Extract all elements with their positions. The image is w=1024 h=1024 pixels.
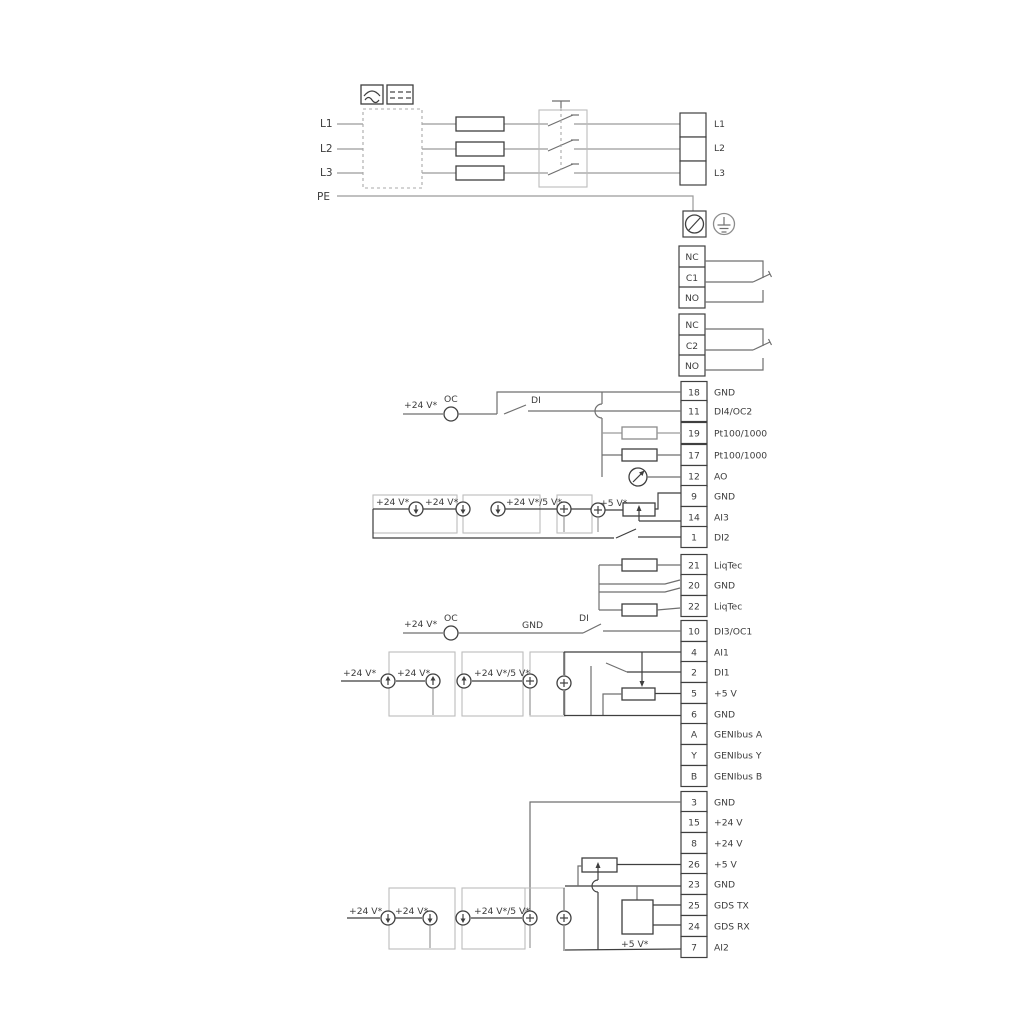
current-source-icon	[423, 911, 437, 925]
terminal-label: +24 V	[714, 838, 743, 849]
current-source-icon	[457, 674, 471, 688]
voltage-source-icon	[557, 676, 571, 690]
terminal-number: 15	[688, 817, 700, 828]
voltage-source-icon	[557, 911, 571, 925]
protective-earth-icon	[714, 214, 735, 235]
fuse-icon-l1	[456, 117, 504, 131]
terminal-label: GND	[714, 709, 735, 720]
resistor-icon	[622, 604, 657, 616]
terminal-number: 7	[691, 942, 697, 953]
relay2-no: NO	[685, 361, 699, 372]
oc-collector-icon	[444, 626, 458, 640]
resistor-icon	[622, 559, 657, 571]
v24-label: +24 V*	[349, 906, 383, 917]
terminal-number: 24	[688, 921, 700, 932]
terminal-label: Pt100/1000	[714, 428, 767, 439]
terminal-number: 9	[691, 491, 697, 502]
gnd-label: GND	[522, 620, 543, 631]
terminal-number: 21	[688, 560, 700, 571]
terminal-label: LiqTec	[714, 601, 742, 612]
gds-module-box	[622, 900, 653, 934]
wiring-diagram-page: L1 L2 L3 PE	[0, 0, 1024, 1024]
v24-label: +24 V*	[404, 400, 438, 411]
dc-icon	[387, 85, 413, 104]
ac-wave-icon	[361, 85, 383, 104]
terminal-label: DI3/OC1	[714, 626, 752, 637]
terminal-label: LiqTec	[714, 560, 742, 571]
v5-label: +5 V*	[621, 939, 649, 950]
out-label-l1: L1	[714, 119, 725, 130]
terminal-label: +5 V	[714, 859, 737, 870]
terminal-number: 4	[691, 647, 697, 658]
relay2-nc: NC	[685, 320, 698, 331]
terminal-number: 22	[688, 601, 700, 612]
resistor-icon	[622, 427, 657, 439]
terminal-label: GENIbus B	[714, 771, 762, 782]
fuse-icon-l3	[456, 166, 504, 180]
terminal-number: 19	[688, 428, 700, 439]
out-label-l2: L2	[714, 143, 725, 154]
terminal-number: 17	[688, 450, 700, 461]
current-source-icon	[491, 502, 505, 516]
current-source-icon	[409, 502, 423, 516]
v24-label: +24 V*	[343, 668, 377, 679]
terminal-label: DI4/OC2	[714, 406, 752, 417]
voltage-source-icon	[523, 674, 537, 688]
terminal-label: +24 V	[714, 817, 743, 828]
wiring-diagram: L1 L2 L3 PE	[0, 0, 1024, 1024]
oc-collector-icon	[444, 407, 458, 421]
relay1-no: NO	[685, 293, 699, 304]
oc-label: OC	[444, 394, 458, 405]
terminal-number: 2	[691, 667, 697, 678]
terminal-label: GND	[714, 797, 735, 808]
current-source-icon	[426, 674, 440, 688]
terminal-label: Pt100/1000	[714, 450, 767, 461]
v24-5v-label: +24 V*/5 V*	[506, 497, 562, 508]
terminal-label: GND	[714, 879, 735, 890]
background	[0, 0, 1024, 1024]
terminal-number: 14	[688, 512, 700, 523]
relay2-c: C2	[686, 341, 698, 352]
terminal-label: GDS RX	[714, 921, 750, 932]
v24-label: +24 V*	[376, 497, 410, 508]
terminal-label: AI2	[714, 942, 729, 953]
terminal-number: 23	[688, 879, 700, 890]
terminal-number: A	[691, 729, 698, 740]
v24-5v-label: +24 V*/5 V*	[474, 668, 530, 679]
terminal-label: +5 V	[714, 688, 737, 699]
terminal-label: GDS TX	[714, 900, 749, 911]
line-label-l1: L1	[320, 118, 333, 130]
v24-label: +24 V*	[397, 668, 431, 679]
terminal-number: 11	[688, 406, 700, 417]
line-label-l2: L2	[320, 143, 333, 155]
terminal-number: B	[691, 771, 697, 782]
voltage-source-icon	[523, 911, 537, 925]
mains-output-block: L1 L2 L3	[680, 113, 725, 185]
resistor-icon	[622, 449, 657, 461]
line-label-l3: L3	[320, 167, 333, 179]
terminal-number: 12	[688, 471, 700, 482]
terminal-number: 6	[691, 709, 697, 720]
line-label-pe: PE	[317, 191, 330, 203]
terminal-label: GND	[714, 387, 735, 398]
terminal-number: 3	[691, 797, 697, 808]
terminal-number: Y	[690, 750, 697, 761]
relay1-c: C1	[686, 273, 698, 284]
oc-label: OC	[444, 613, 458, 624]
v24-5v-label: +24 V*/5 V*	[474, 906, 530, 917]
terminal-label: DI1	[714, 667, 730, 678]
relay1-nc: NC	[685, 252, 698, 263]
voltage-source-icon	[557, 502, 571, 516]
current-source-icon	[381, 674, 395, 688]
terminal-number: 26	[688, 859, 700, 870]
terminal-number: 1	[691, 532, 697, 543]
current-source-icon	[381, 911, 395, 925]
terminal-number: 25	[688, 900, 700, 911]
terminal-label: GENIbus A	[714, 729, 763, 740]
sensor-meter-icon	[629, 468, 647, 486]
terminal-number: 18	[688, 387, 700, 398]
terminal-number: 20	[688, 580, 700, 591]
voltage-source-icon	[591, 503, 605, 517]
terminal-label: GENIbus Y	[714, 750, 762, 761]
current-source-icon	[456, 911, 470, 925]
di-label: DI	[531, 395, 541, 406]
terminal-label: GND	[714, 580, 735, 591]
terminal-label: AO	[714, 471, 727, 482]
terminal-label: DI2	[714, 532, 730, 543]
terminal-number: 8	[691, 838, 697, 849]
out-label-l3: L3	[714, 168, 725, 179]
terminal-label: GND	[714, 491, 735, 502]
terminal-label: AI3	[714, 512, 729, 523]
screw-terminal-icon	[683, 211, 706, 237]
v24-label: +24 V*	[404, 619, 438, 630]
terminal-label: AI1	[714, 647, 729, 658]
di-label: DI	[579, 613, 589, 624]
current-source-icon	[456, 502, 470, 516]
terminal-number: 10	[688, 626, 700, 637]
v24-label: +24 V*	[425, 497, 459, 508]
terminal-number: 5	[691, 688, 697, 699]
fuse-icon-l2	[456, 142, 504, 156]
